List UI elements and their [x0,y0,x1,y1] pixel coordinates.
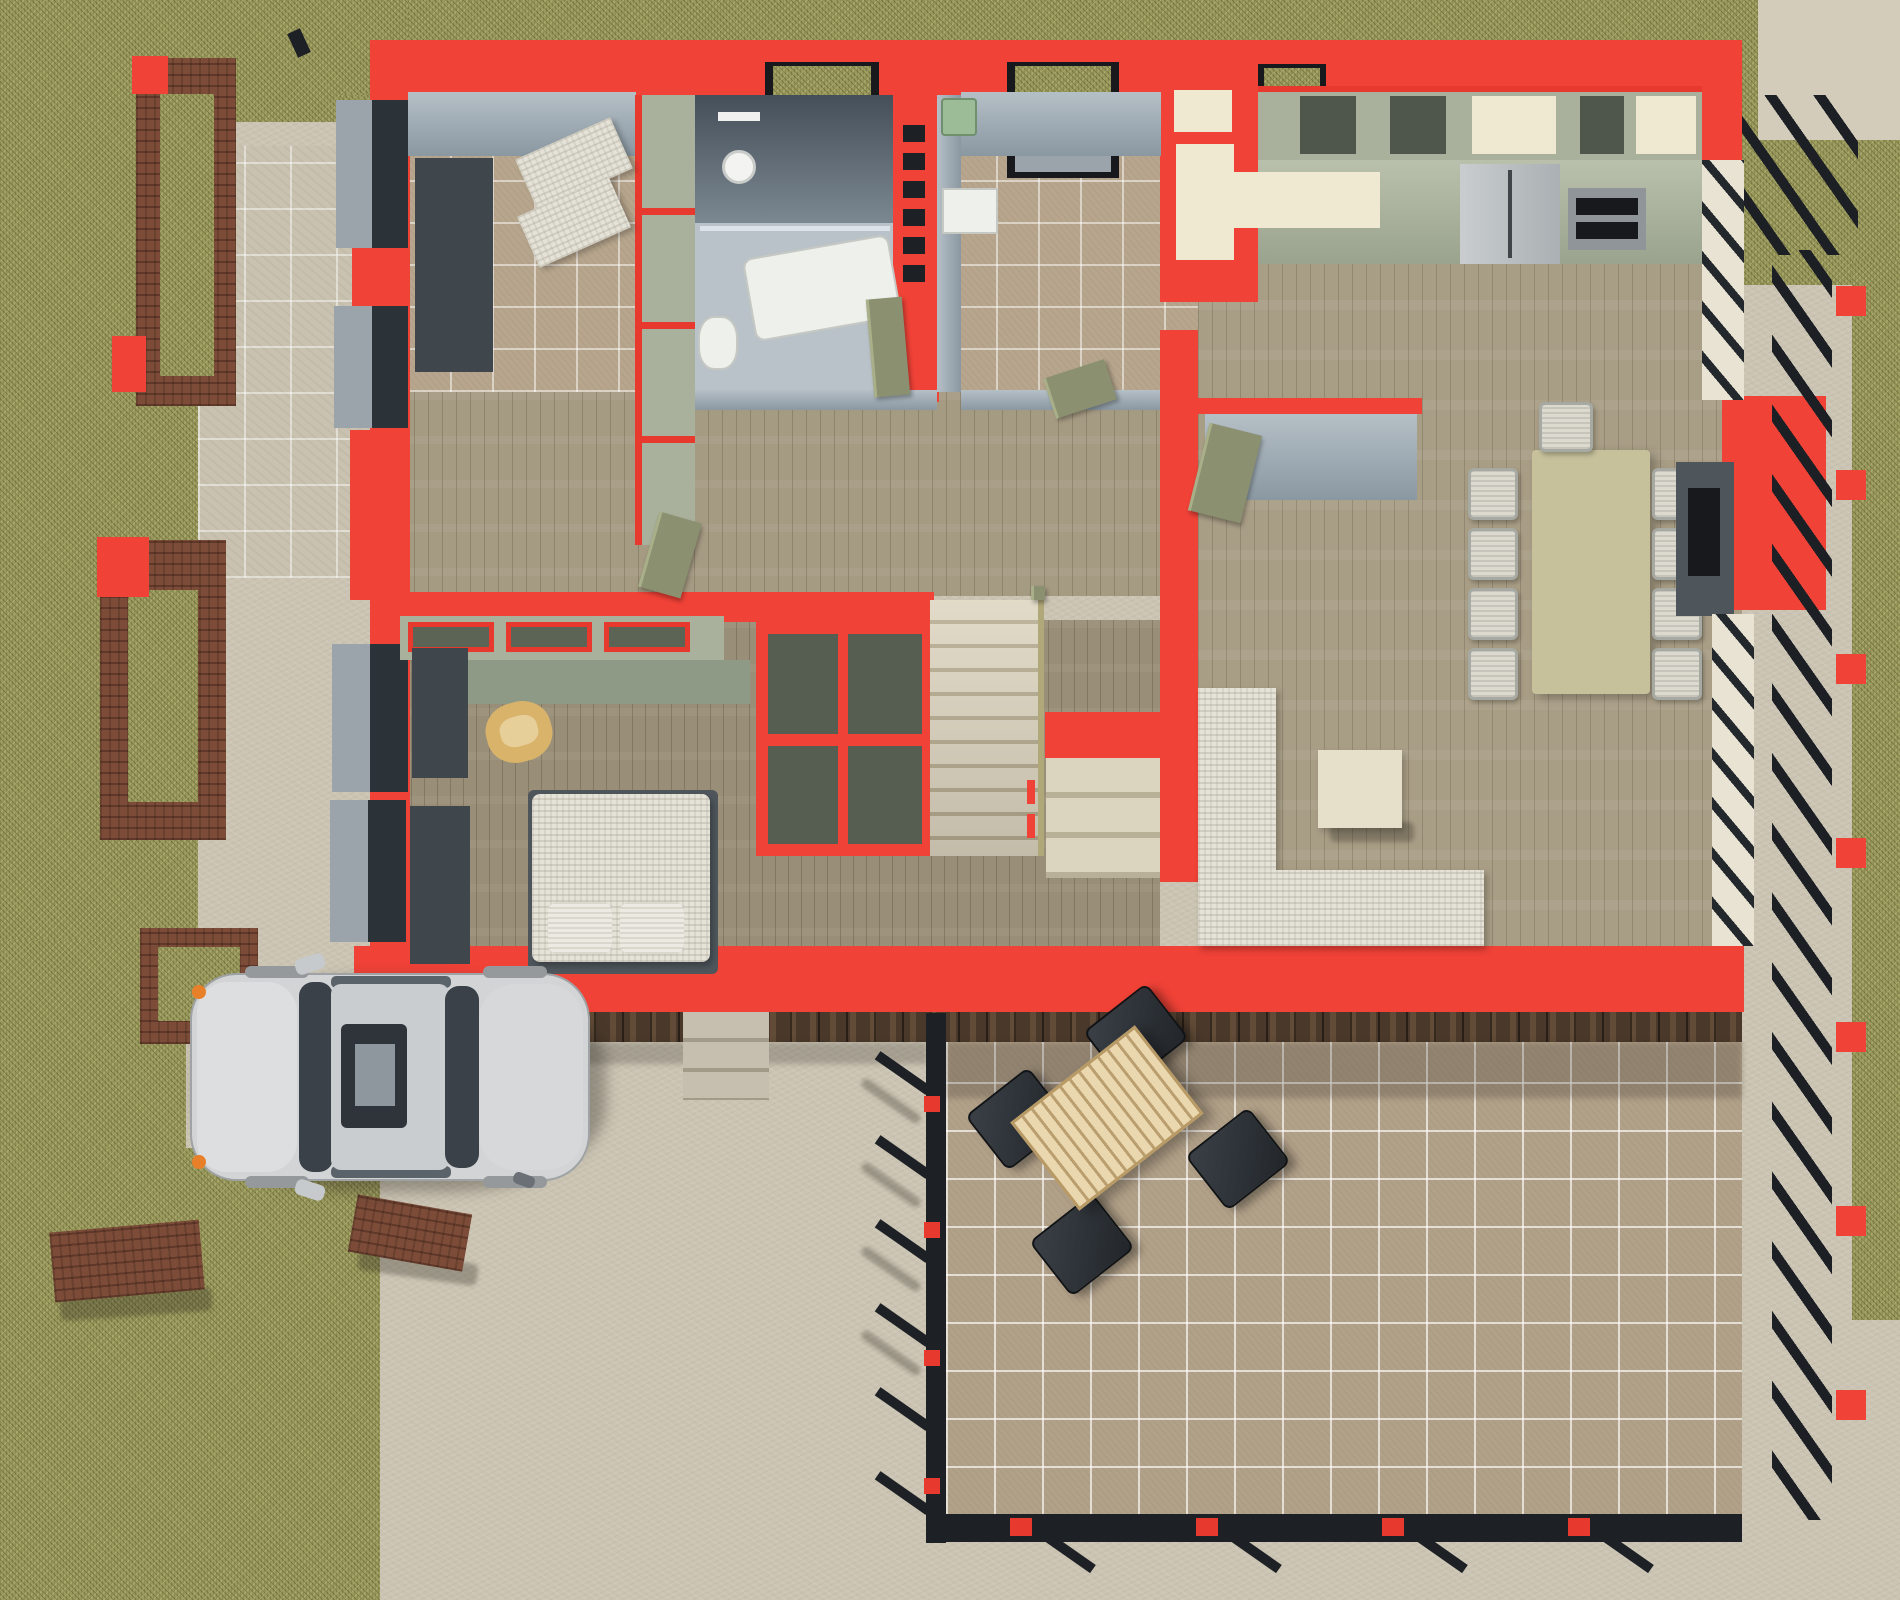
shower-head [722,150,756,184]
patio-rail-left-red-4 [924,1478,940,1494]
car-rear-window [445,986,479,1168]
patio-rail-post-6 [875,1471,932,1515]
patio-rail-bottom-red-3 [1382,1518,1404,1536]
cooktop-grate-1 [1576,198,1638,215]
closet-shelf-2 [635,322,695,329]
car [183,952,598,1202]
car-mirror-top [293,952,326,976]
grass-right-strip [1852,260,1900,1320]
kitchen-countertop-white [1228,172,1380,228]
wall-left-pier-b [350,430,410,600]
kitchen-upper-edge [1258,86,1702,92]
terrace-rail-red-6 [1836,1206,1866,1236]
window-left-2-sill [334,306,372,428]
under-stair-cell-1 [768,634,838,734]
planter-north-grass [160,94,214,376]
chimney-flue-5 [903,237,925,254]
window-left-4-glass [368,800,406,942]
car-mirror-bottom [293,1178,326,1202]
pillow-right [620,902,684,954]
car-marker-front-top [192,985,206,999]
dining-chair-head [1539,402,1593,452]
kitchen-cab-open-2 [1390,96,1446,154]
under-stair-cell-3 [768,746,838,844]
stair-post-red-1 [1027,780,1035,804]
car-sunroof-panel [355,1044,395,1106]
patio-rail-post-2 [875,1135,932,1179]
kitchen-cab-glass-1 [1472,96,1556,154]
staircase [930,600,1042,856]
kitchen-cab-open-1 [1300,96,1356,154]
dining-chair-left-1 [1468,468,1518,520]
utility-west-wall [937,95,961,392]
patio-rail-left-red-3 [924,1350,940,1366]
tv-screen [1688,488,1720,576]
car-trunk [479,984,583,1170]
dining-chair-left-2 [1468,528,1518,580]
terrace-rail-red-3 [1836,654,1866,684]
terrace-rail-right [1772,250,1832,1520]
patio-rail-post-5 [875,1387,932,1431]
shower-glass [700,226,890,231]
car-marker-front-bottom [192,1155,206,1169]
closet-shelf-3 [635,436,695,443]
entry-wardrobe [415,158,493,372]
east-glazing-north [1702,160,1744,400]
kitchen-cab-glass-2 [1636,96,1696,154]
dining-table [1532,450,1650,694]
stair-newel [1031,586,1045,600]
grass-top-strip [408,0,1742,42]
patio-rail-bottom [946,1514,1742,1542]
shower-arm [718,112,760,121]
east-glazing-south [1712,614,1754,946]
garden-bench-a [49,1220,205,1303]
planter-north-red-base [112,336,146,392]
sofa-horizontal [1198,870,1484,946]
patio-rail-bottom-red-1 [1010,1518,1032,1536]
wall-top-right-corner [1700,40,1742,162]
window-left-2-glass [372,306,408,428]
wall-living-arm [1045,712,1197,758]
patio-rail-post-4 [875,1303,932,1347]
stair-post-red-2 [1027,814,1035,838]
closet-edge [635,95,642,545]
bedroom-desk [420,660,750,704]
dining-chair-right-4 [1652,648,1702,700]
window-left-1-glass [372,100,408,248]
stair-railing [1038,594,1044,856]
patio-rail-left-red-2 [924,1222,940,1238]
terrace-rail-red-7 [1836,1390,1866,1420]
planter-mid-red-cap [97,537,149,597]
chimney-flue-4 [903,209,925,226]
pillow-left [548,902,612,954]
floor-corridor [372,392,1160,596]
chimney-flue-1 [903,125,925,142]
patio-rail-bottom-red-2 [1196,1518,1218,1536]
patio-rail-left-red-1 [924,1096,940,1112]
closet-cabinet [635,95,695,545]
car-wheel-rear-top [483,966,547,978]
patio-rail-post-3 [875,1219,932,1263]
closet-shelf-1 [635,208,695,215]
cooktop-grate-2 [1576,222,1638,239]
bedroom-window-panel [412,648,468,778]
headboard-panel [410,806,470,964]
car-hood [197,982,297,1172]
toilet [698,316,738,370]
sofa-vertical [1198,688,1276,880]
wall-meter [941,98,977,136]
terrace-rail-red-1 [1836,286,1866,316]
car-windshield [299,982,333,1172]
patio-rail-bottom-red-4 [1568,1518,1590,1536]
kitchen-cab-open-3 [1580,96,1624,154]
terrace-rail-red-4 [1836,838,1866,868]
pantry-glass-b [1176,144,1234,260]
utility-north-wall-face [961,92,1161,156]
wall-spine [1160,330,1198,882]
dining-chair-left-4 [1468,648,1518,700]
wall-left-pier-a [352,248,410,306]
under-stair-cell-4 [848,746,922,844]
pantry-glass-a [1174,90,1232,132]
pergola-top-right [1742,95,1858,255]
coffee-table [1318,750,1402,828]
planter-mid-grass [128,590,198,802]
under-stair-cell-2 [848,634,922,734]
front-steps [683,1012,769,1100]
fridge-handle [1508,170,1512,258]
window-left-3-sill [332,644,370,792]
terrace-rail-red-2 [1836,470,1866,500]
terrace-rail-red-5 [1836,1022,1866,1052]
bedroom-shelf-cell-2 [506,622,592,652]
patio-rail-left [926,1013,946,1543]
chimney-flue-2 [903,153,925,170]
landing-steps [1046,758,1160,878]
floor-plan-render [0,0,1900,1600]
wall-dining-north [1196,398,1422,414]
window-left-3-glass [370,644,408,792]
bedroom-shelf-cell-3 [604,622,690,652]
window-left-1-sill [336,100,374,248]
window-left-4-sill [330,800,368,942]
utility-sink [942,188,998,234]
dining-chair-left-3 [1468,588,1518,640]
chimney-flue-3 [903,181,925,198]
planter-north-red-cap [132,56,168,94]
chimney-flue-6 [903,265,925,282]
grass-bottom-left-wide [0,1148,380,1600]
